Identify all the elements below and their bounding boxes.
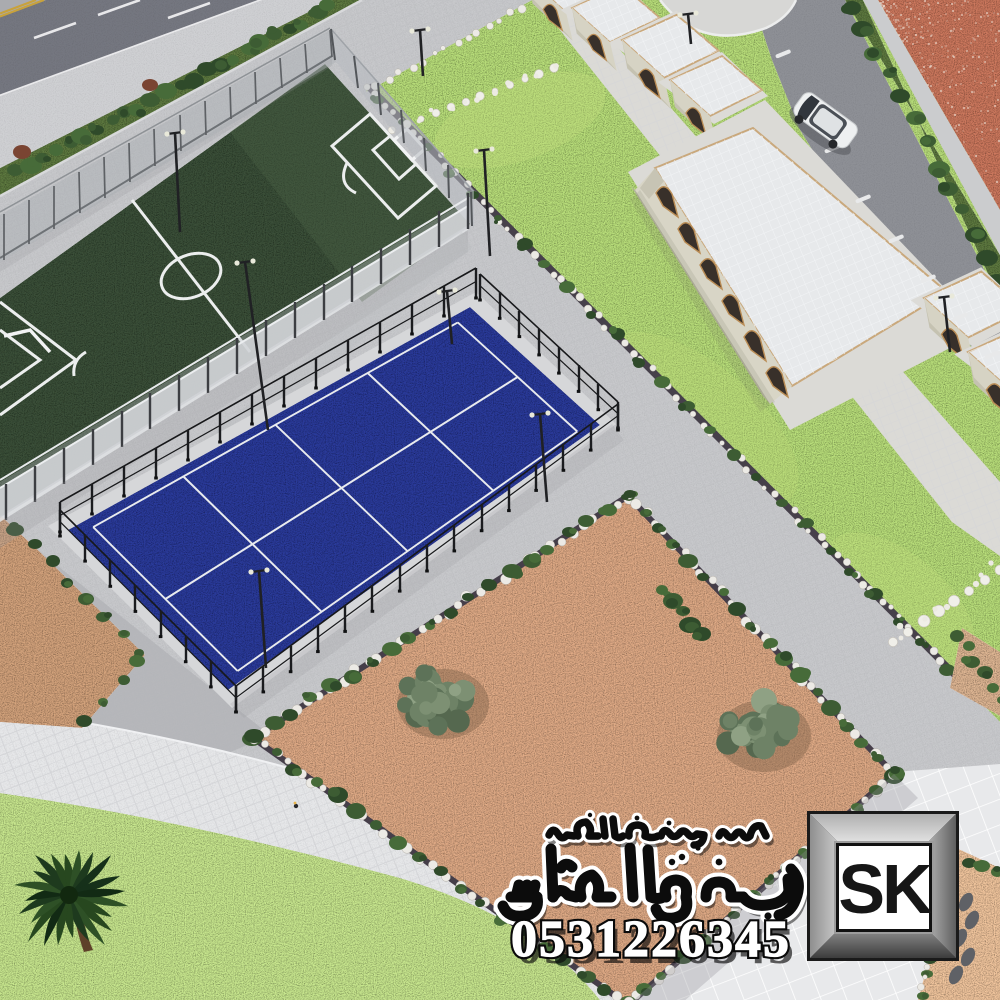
svg-text:SK: SK	[838, 850, 932, 928]
svg-text:0531226345: 0531226345	[511, 911, 791, 968]
